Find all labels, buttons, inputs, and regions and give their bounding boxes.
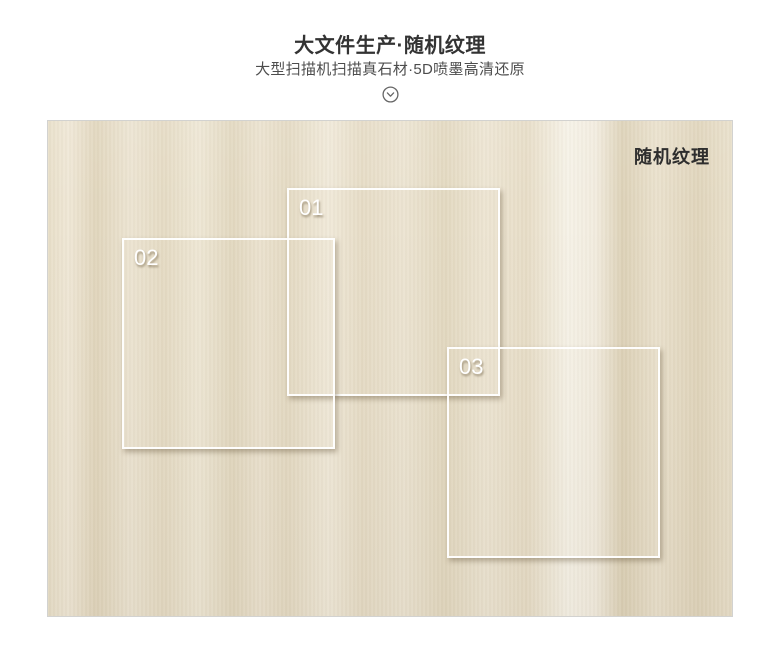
marble-texture-panel: 随机纹理 01 02 03 (47, 120, 733, 617)
region-number-label: 01 (299, 197, 323, 219)
section-title: 大文件生产·随机纹理 (0, 35, 780, 57)
texture-region-02: 02 (122, 238, 335, 449)
chevron-down-circle-icon (0, 86, 780, 104)
region-number-label: 02 (134, 247, 158, 269)
texture-region-03: 03 (447, 347, 660, 558)
region-number-label: 03 (459, 356, 483, 378)
corner-label: 随机纹理 (634, 143, 710, 169)
section-header: 大文件生产·随机纹理 大型扫描机扫描真石材·5D喷墨高清还原 (0, 0, 780, 104)
section-subtitle: 大型扫描机扫描真石材·5D喷墨高清还原 (0, 60, 780, 79)
